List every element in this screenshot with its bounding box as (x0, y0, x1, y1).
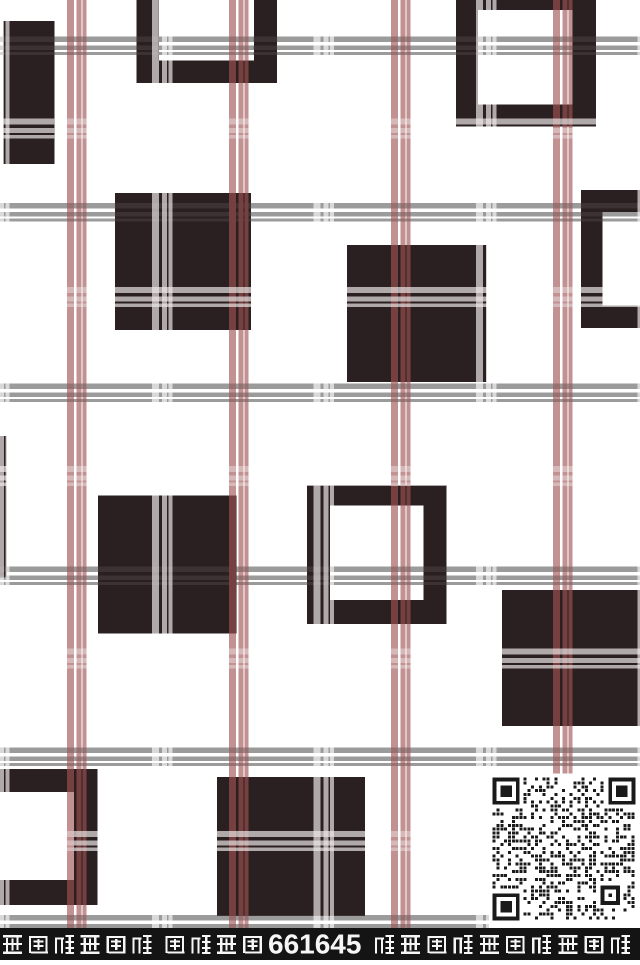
svg-text:661645: 661645 (268, 929, 361, 960)
